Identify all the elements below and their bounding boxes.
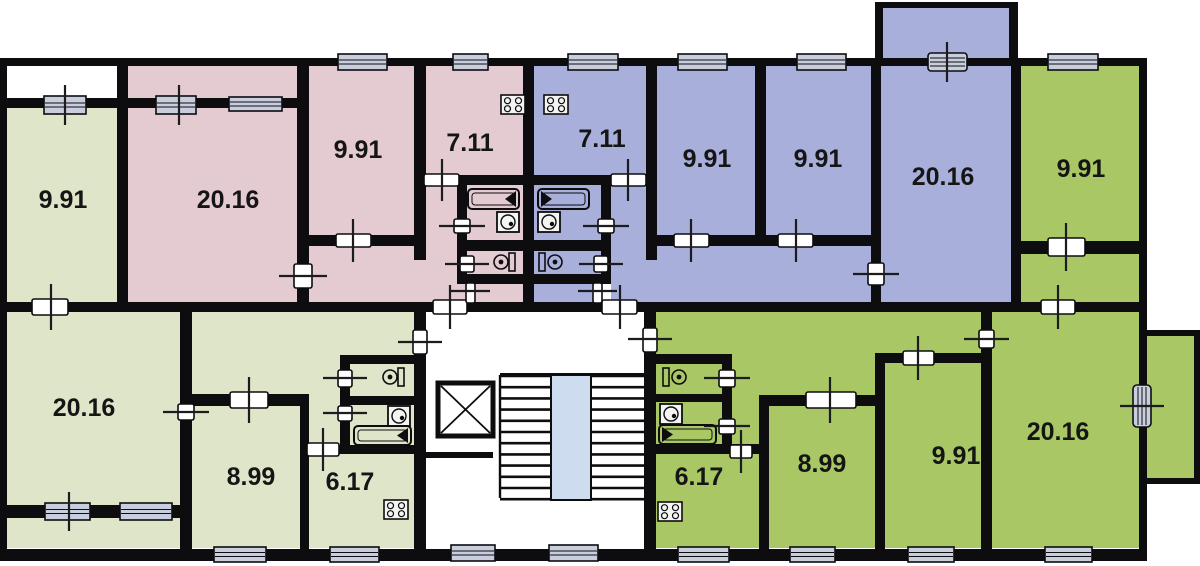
svg-text:9.91: 9.91	[334, 136, 383, 164]
svg-text:7.11: 7.11	[446, 129, 493, 157]
svg-text:6.17: 6.17	[675, 463, 724, 491]
svg-text:9.91: 9.91	[794, 145, 843, 173]
svg-text:9.91: 9.91	[683, 145, 732, 173]
svg-text:9.91: 9.91	[1057, 155, 1106, 183]
svg-text:20.16: 20.16	[53, 394, 116, 422]
svg-text:20.16: 20.16	[912, 163, 975, 191]
svg-text:8.99: 8.99	[227, 463, 276, 491]
svg-text:20.16: 20.16	[1027, 418, 1090, 446]
svg-text:8.99: 8.99	[798, 450, 847, 478]
svg-text:7.11: 7.11	[578, 125, 625, 153]
svg-text:20.16: 20.16	[197, 186, 260, 214]
svg-text:6.17: 6.17	[326, 468, 375, 496]
svg-text:9.91: 9.91	[39, 186, 88, 214]
svg-text:9.91: 9.91	[932, 442, 981, 470]
